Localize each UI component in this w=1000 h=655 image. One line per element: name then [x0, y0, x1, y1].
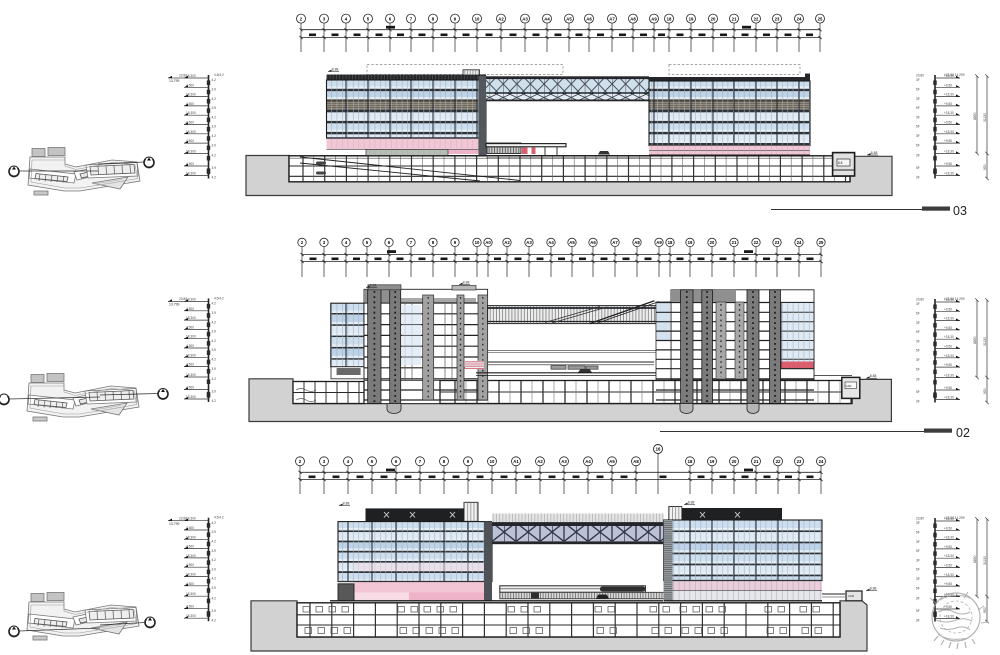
svg-text:02: 02: [956, 426, 970, 440]
svg-text:CAR: CAR: [846, 384, 852, 388]
svg-text:24: 24: [797, 240, 802, 245]
svg-text:18: 18: [688, 459, 693, 464]
svg-text:19: 19: [688, 240, 693, 245]
svg-text:24: 24: [819, 459, 824, 464]
svg-text:8.88: 8.88: [870, 586, 877, 590]
svg-text:A6: A6: [590, 240, 596, 245]
svg-text:8.88: 8.88: [870, 374, 877, 378]
svg-text:A8: A8: [630, 16, 636, 21]
svg-text:23: 23: [775, 240, 780, 245]
svg-text:19: 19: [689, 16, 694, 21]
svg-text:A7: A7: [612, 240, 618, 245]
svg-text:A8: A8: [633, 459, 639, 464]
svg-text:A7: A7: [609, 16, 615, 21]
svg-text:23: 23: [775, 16, 780, 21]
svg-text:20: 20: [710, 240, 715, 245]
svg-text:A4: A4: [548, 240, 554, 245]
svg-text:8.88: 8.88: [332, 67, 339, 71]
svg-text:8.88: 8.88: [370, 283, 377, 287]
svg-text:A5: A5: [609, 459, 615, 464]
svg-text:8.88: 8.88: [463, 280, 470, 284]
svg-text:CAR: CAR: [848, 594, 854, 598]
svg-text:18: 18: [667, 16, 672, 21]
svg-text:A0: A0: [485, 240, 491, 245]
svg-text:10: 10: [490, 459, 495, 464]
svg-text:A4: A4: [544, 16, 550, 21]
svg-text:8.8: 8.8: [838, 161, 843, 165]
svg-text:A3: A3: [522, 16, 528, 21]
svg-text:21: 21: [732, 16, 737, 21]
svg-text:10: 10: [475, 240, 480, 245]
svg-text:22: 22: [776, 459, 781, 464]
svg-text:A8: A8: [634, 240, 640, 245]
svg-text:8.88: 8.88: [871, 151, 878, 155]
svg-text:20: 20: [711, 16, 716, 21]
svg-text:A6: A6: [586, 16, 592, 21]
svg-text:A2: A2: [504, 240, 510, 245]
svg-text:A9: A9: [651, 16, 657, 21]
svg-text:22: 22: [754, 16, 759, 21]
svg-text:A2: A2: [537, 459, 543, 464]
svg-text:A2: A2: [498, 16, 504, 21]
svg-text:8.88: 8.88: [688, 500, 695, 504]
svg-text:A5: A5: [566, 16, 572, 21]
svg-text:23: 23: [797, 459, 802, 464]
svg-text:A3: A3: [561, 459, 567, 464]
svg-text:A3: A3: [526, 240, 532, 245]
svg-text:18: 18: [668, 240, 673, 245]
svg-text:19: 19: [710, 459, 715, 464]
svg-text:A1: A1: [513, 459, 519, 464]
svg-text:25: 25: [818, 16, 823, 21]
svg-text:8.88: 8.88: [343, 501, 350, 505]
svg-text:22: 22: [754, 240, 759, 245]
svg-text:24: 24: [797, 16, 802, 21]
svg-text:20: 20: [732, 459, 737, 464]
svg-text:25: 25: [819, 240, 824, 245]
svg-text:21: 21: [754, 459, 759, 464]
svg-text:10: 10: [475, 16, 480, 21]
svg-text:A5: A5: [569, 240, 575, 245]
svg-text:03: 03: [953, 204, 967, 218]
svg-text:A9: A9: [656, 240, 662, 245]
svg-text:16: 16: [656, 447, 661, 452]
svg-text:21: 21: [732, 240, 737, 245]
svg-text:A4: A4: [585, 459, 591, 464]
